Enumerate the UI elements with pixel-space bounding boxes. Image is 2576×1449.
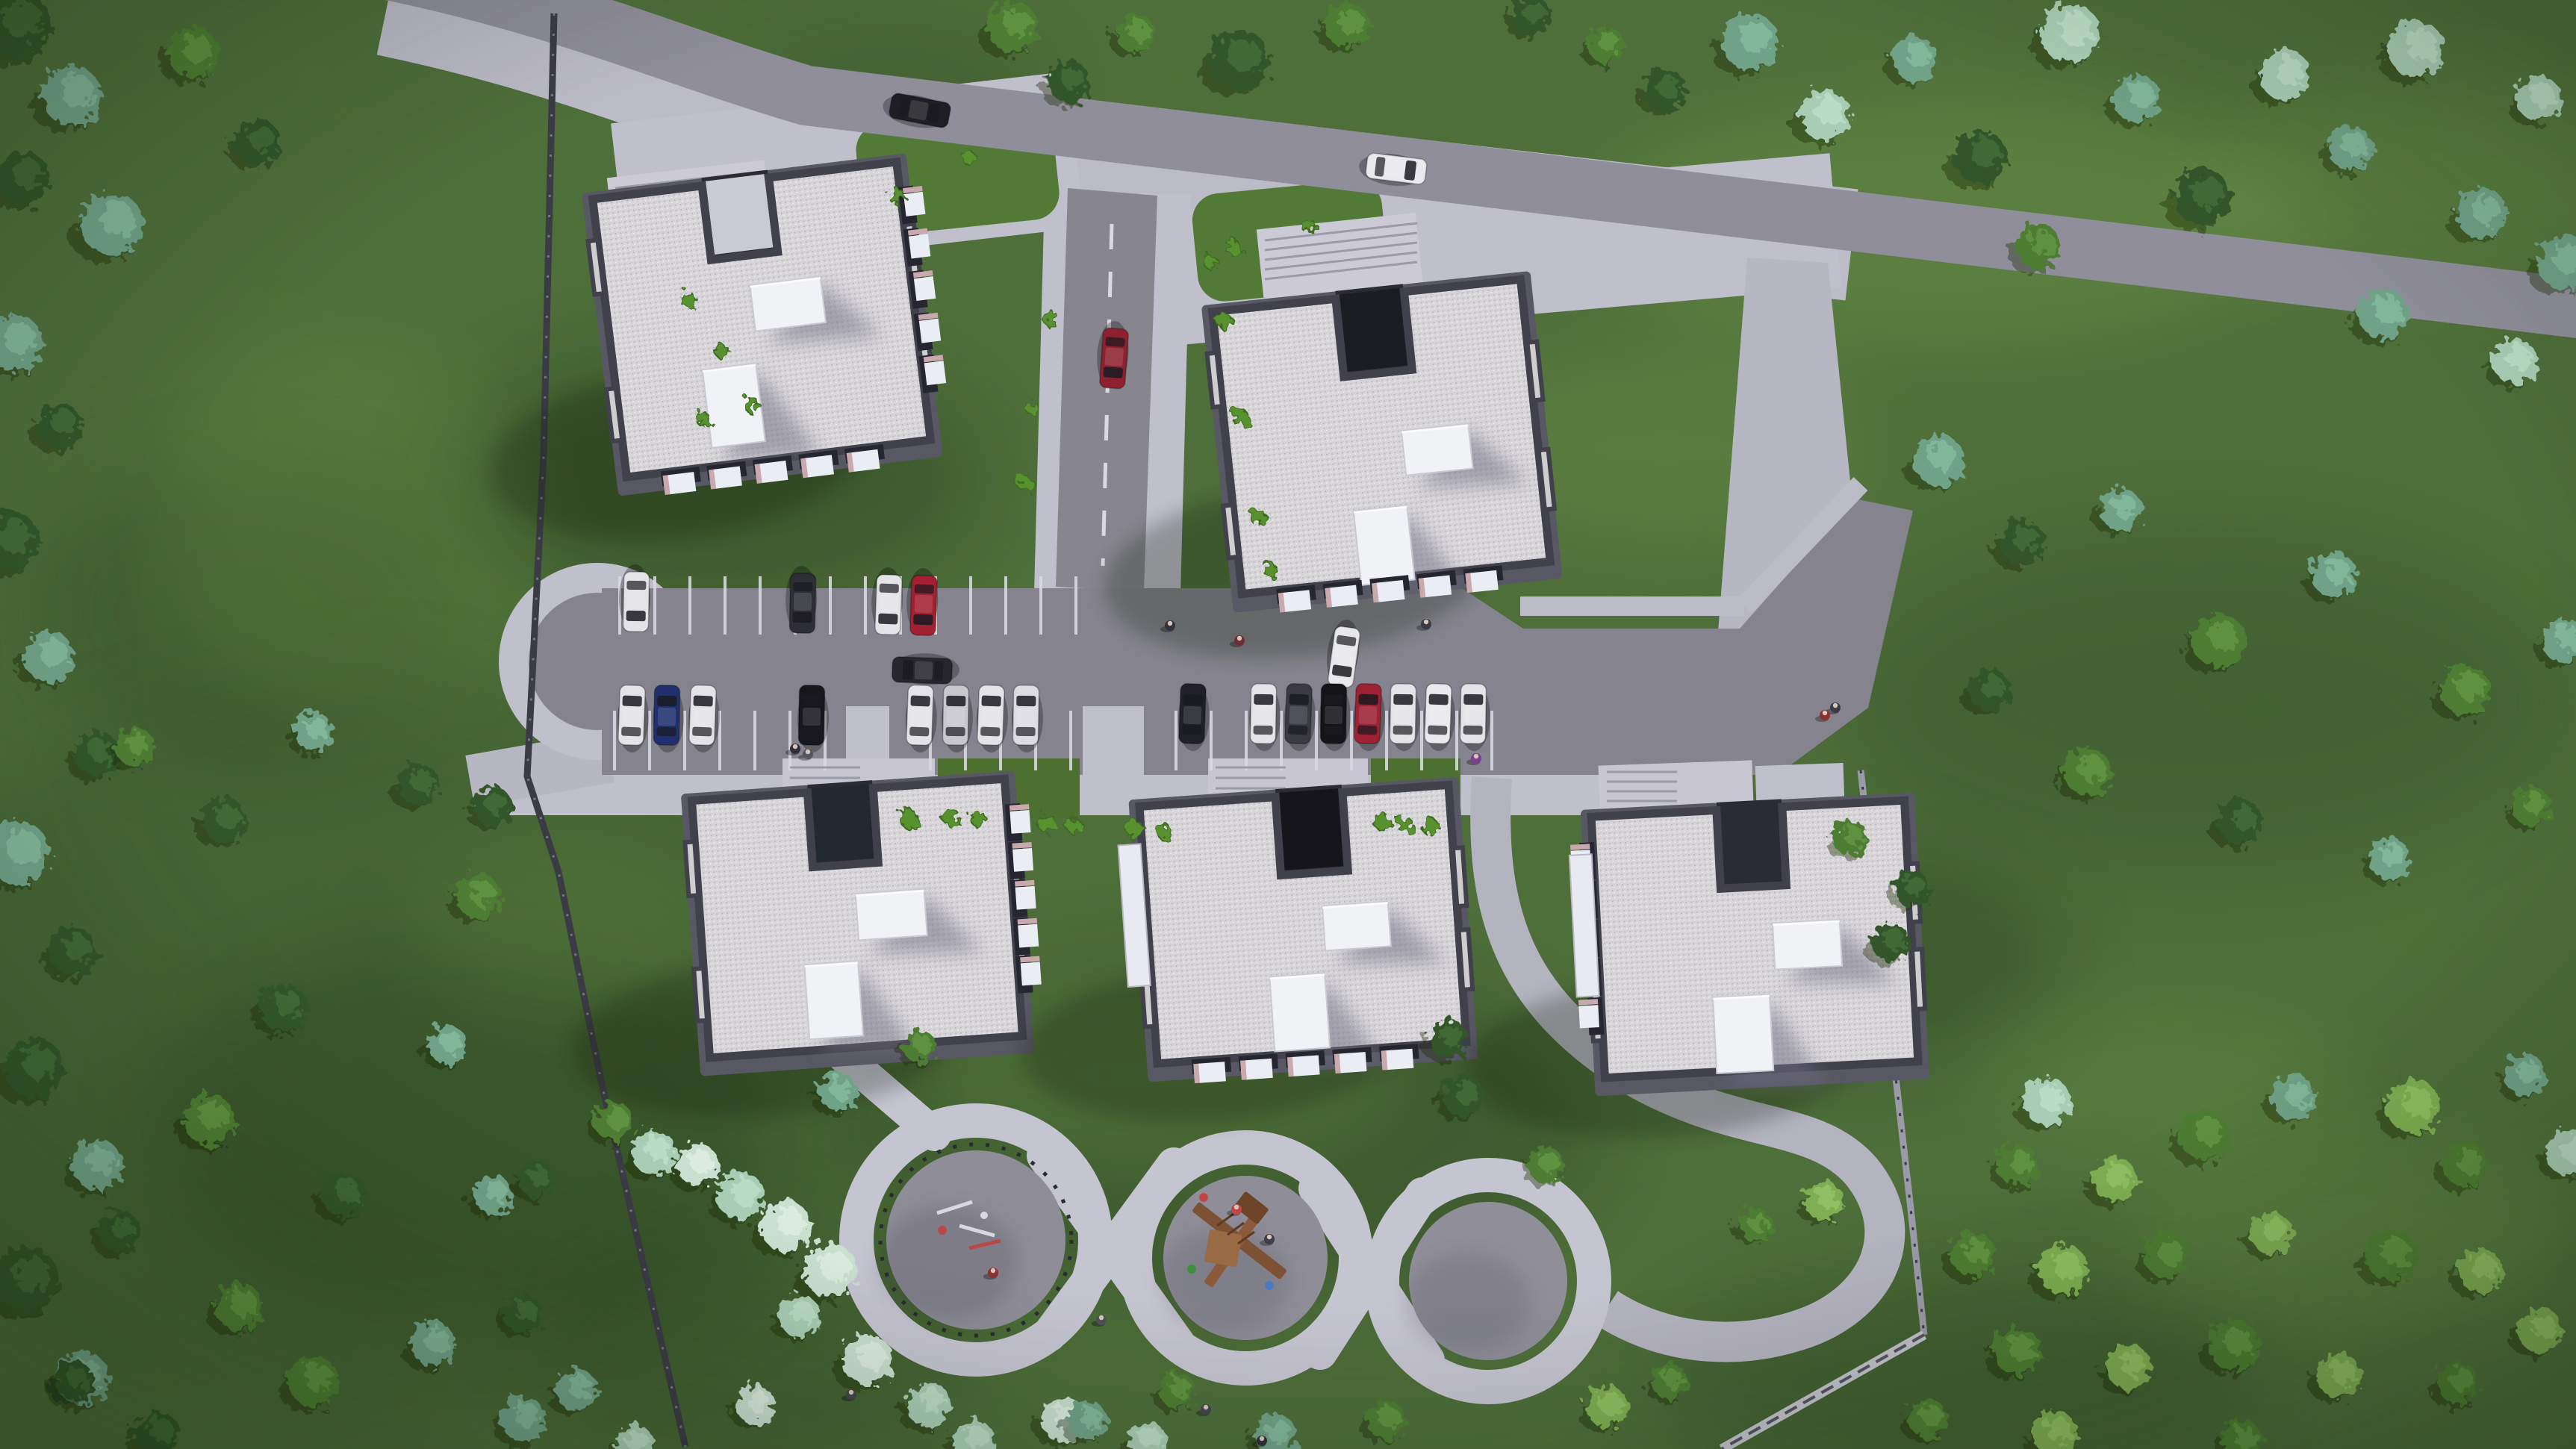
vignette — [0, 0, 2576, 1449]
site-plan-canvas — [0, 0, 2576, 1449]
fx-layer — [0, 0, 2576, 1449]
aerial-site-render — [0, 0, 2576, 1449]
